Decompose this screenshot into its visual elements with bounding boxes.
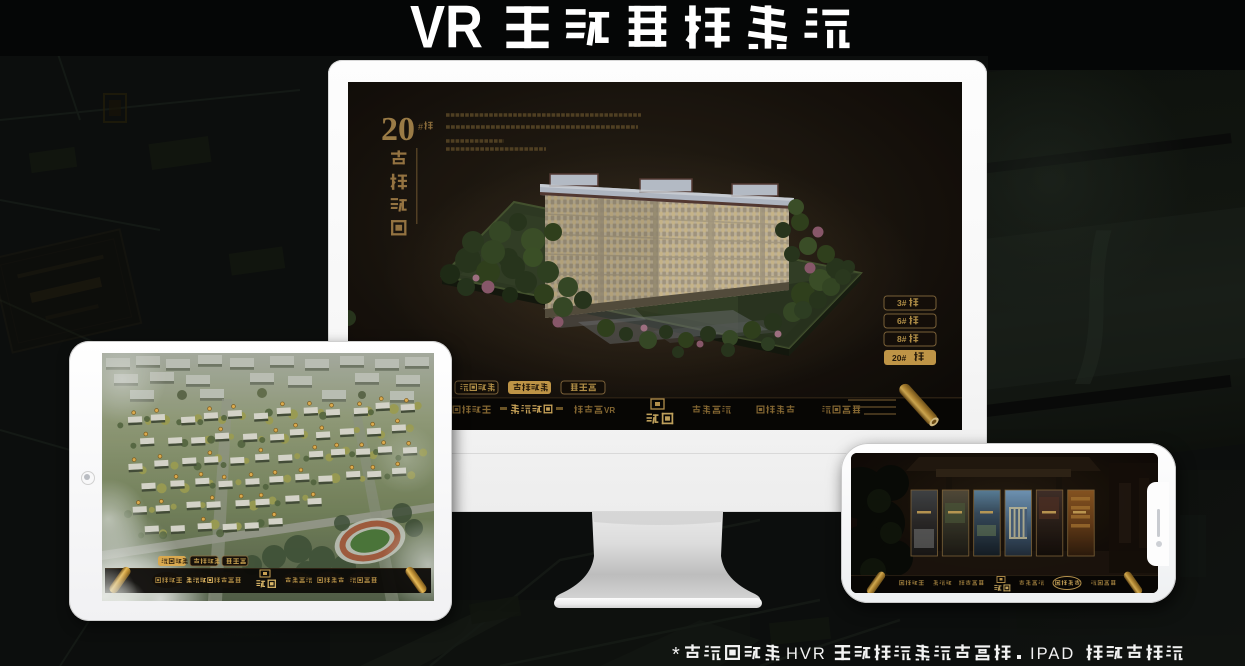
svg-text:VR: VR bbox=[410, 0, 483, 58]
svg-text:*: * bbox=[672, 644, 680, 665]
svg-text:HVR: HVR bbox=[786, 645, 827, 663]
svg-text:IPAD: IPAD bbox=[1030, 645, 1075, 663]
